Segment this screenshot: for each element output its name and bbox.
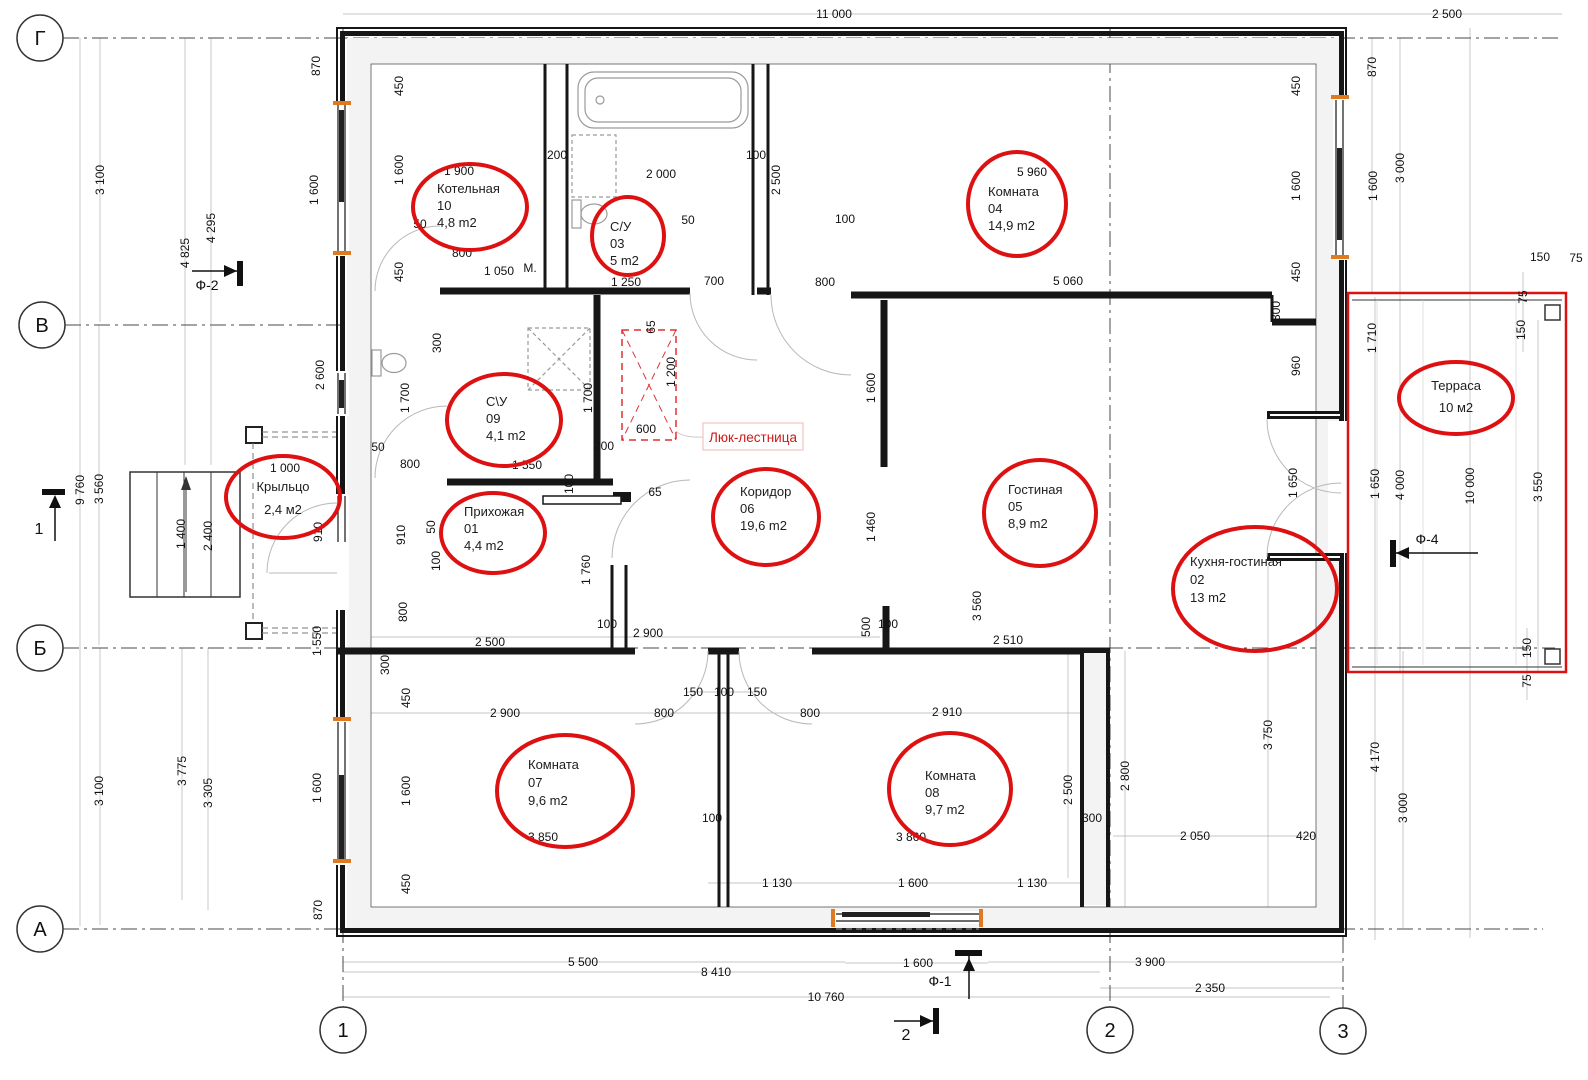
room-circle-annotation [889,733,1011,845]
room-label-group: Коридор0619,6 m2 [713,469,819,565]
marker-f2: Ф-2 [192,261,243,293]
dimension-label: 75 [1516,290,1530,304]
dimension-label: 2 800 [1118,761,1132,791]
dimension-label: 3 560 [92,474,106,504]
dimension-label: 100 [562,474,576,494]
dimension-label: 150 [1530,250,1550,264]
room-label-group: Прихожая014,4 m2 [441,493,545,573]
dimension-label: 75 [1569,251,1583,265]
dimension-label: 2 900 [633,626,663,640]
dimension-label: 100 [702,811,722,825]
dimension-label: 4 295 [204,213,218,243]
dimension-label: 800 [654,706,674,720]
fixtures [372,72,748,390]
dimension-label: 1 760 [579,555,593,585]
dimension-label: 2 500 [1061,775,1075,805]
dimension-label: 1 600 [392,155,406,185]
dimension-label: 2 400 [201,521,215,551]
dimension-label: 100 [714,685,734,699]
floor-plan-canvas: Люк-лестница Ф-2 1 Ф-1 2 [0,0,1588,1080]
dimension-label: 600 [636,422,656,436]
terrace-post [1545,649,1560,664]
marker-f1: Ф-1 [928,950,982,999]
dimension-label: 960 [1289,356,1303,376]
axis-markers-layer: ГВБА123 [17,15,1366,1054]
dimension-label: 3 550 [1531,472,1545,502]
room-label: Гостиная058,9 m2 [1008,482,1063,531]
dimension-label: 300 [430,333,444,353]
dimension-label: 100 [597,617,617,631]
dimension-label: 50 [681,213,695,227]
room-label: Котельная104,8 m2 [437,181,500,230]
room-label: С/У035 m2 [610,219,639,268]
dimension-label: 1 250 [611,275,641,289]
dimension-label: 50 [371,440,385,454]
dimension-label: 11 000 [816,7,852,21]
axis-label: 2 [1104,1020,1115,1042]
dimension-label: 100 [878,617,898,631]
axis-label: 3 [1337,1021,1348,1043]
room-label: Терраса10 м2 [1431,378,1482,415]
dimension-label: 100 [429,551,443,571]
dimension-label: 3 775 [175,756,189,786]
dimension-label: 1 600 [864,373,878,403]
dimension-label: 800 [815,275,835,289]
dimension-label: 150 [683,685,703,699]
room-label-group: С\У094,1 m2 [447,374,561,466]
dimension-label: 2 500 [769,165,783,195]
room-label-group: С/У035 m2 [592,197,664,275]
dimension-label: 3 560 [970,591,984,621]
dimension-label: 2 600 [313,360,327,390]
dimension-label: 1 200 [664,357,678,387]
dimension-label: 420 [1296,829,1316,843]
dimension-label: 1 600 [898,876,928,890]
dimension-label: 1 600 [307,175,321,205]
dimension-label: 8 410 [701,965,731,979]
dimension-label: 800 [396,602,410,622]
dimension-label: 100 [835,212,855,226]
marker-section-2: 2 [894,1008,939,1044]
dimension-label: 2 000 [646,167,676,181]
dimension-label: 2 500 [475,635,505,649]
toilet-bowl [382,354,406,373]
dimension-label: 2 510 [993,633,1023,647]
dimension-label: 100 [746,148,766,162]
room-label-group: Комната079,6 m2 [497,735,633,847]
dimension-label: 870 [1365,57,1379,77]
axis-label: Б [33,638,46,660]
dimension-label: 65 [648,485,662,499]
room-circle-annotation [447,374,561,466]
dimension-label: 910 [394,525,408,545]
dimension-label: 2 500 [1432,7,1462,21]
room-label: Прихожая014,4 m2 [464,504,524,553]
dimension-label: 700 [704,274,724,288]
dimension-label: 200 [594,439,614,453]
room-label-group: Терраса10 м2 [1399,362,1513,434]
dimension-label: 10 760 [808,990,845,1004]
room-label: Комната0414,9 m2 [988,184,1040,233]
porch-post [246,427,262,443]
dimension-label: 4 170 [1368,742,1382,772]
dimension-label: 1 050 [484,264,514,278]
dimension-label: 1 600 [903,956,933,970]
dimension-label: 500 [859,617,873,637]
dimension-label: 800 [400,457,420,471]
svg-text:Ф-2: Ф-2 [195,277,218,293]
toilet-tank [572,200,581,228]
svg-text:2: 2 [902,1027,911,1044]
axis-marker: В [19,302,65,348]
dimension-label: 5 060 [1053,274,1083,288]
dimension-label: 1 550 [310,626,324,656]
dimension-label: 4 000 [1393,470,1407,500]
dimension-label: 1 600 [310,773,324,803]
porch-post [246,623,262,639]
axis-label: В [35,315,48,337]
dimension-label: 150 [1520,638,1534,658]
dimension-label: 870 [311,900,325,920]
hatch-ladder-label: Люк-лестница [709,430,797,445]
axis-marker: 3 [1320,1008,1366,1054]
dimension-label: 3 750 [1261,720,1275,750]
axis-marker: Г [17,15,63,61]
dimension-label: 2 350 [1195,981,1225,995]
dimension-label: 2 050 [1180,829,1210,843]
dimension-label: 450 [392,76,406,96]
dimension-label: 1 650 [1286,468,1300,498]
dimension-label: 1 460 [864,512,878,542]
room-label: Крыльцо2,4 м2 [256,479,309,517]
svg-text:Ф-4: Ф-4 [1415,531,1438,547]
dimension-label: 65 [644,320,658,334]
dimension-label: 1 710 [1365,323,1379,353]
room-circle-annotation [984,460,1096,566]
dimension-label: 1 000 [270,461,300,475]
dimension-label: 450 [1289,76,1303,96]
svg-text:Ф-1: Ф-1 [928,973,951,989]
dimension-label: 1 700 [581,383,595,413]
dimension-label: 5 960 [1017,165,1047,179]
room-label: Коридор0619,6 m2 [740,484,791,533]
room-circle-annotation [497,735,633,847]
dimension-label: 450 [399,688,413,708]
dimension-label: 1 600 [399,776,413,806]
dimension-label: 1 400 [174,519,188,549]
toilet-tank [372,350,381,376]
dimension-label: 450 [392,262,406,282]
dimension-label: 450 [1289,262,1303,282]
terrace-door-opening [1267,411,1348,561]
dimension-label: 200 [547,148,567,162]
svg-text:1: 1 [35,521,44,538]
dimension-label: 3 000 [1396,793,1410,823]
dimension-label: 300 [1269,301,1283,321]
marker-f4: Ф-4 [1390,531,1478,567]
room-label-group: Кухня-гостиная0213 m2 [1173,527,1337,651]
room-label: Комната089,7 m2 [925,768,977,817]
dimension-label: 1 700 [398,383,412,413]
room-label-group: Гостиная058,9 m2 [984,460,1096,566]
axis-marker: Б [17,625,63,671]
dimension-label: 300 [378,655,392,675]
dimension-label: 300 [1082,811,1102,825]
dimension-label: 50 [424,520,438,534]
dimension-label: 1 130 [1017,876,1047,890]
axis-marker: 1 [320,1007,366,1053]
dimension-label: 1 130 [762,876,792,890]
dimension-label: 3 305 [201,778,215,808]
dimension-label: 1 650 [1368,469,1382,499]
terrace-post [1545,305,1560,320]
axis-label: Г [35,28,46,50]
dimension-label: 150 [747,685,767,699]
dimension-label: 9 760 [73,475,87,505]
room-label-group: Комната089,7 m2 [889,733,1011,845]
axis-marker: 2 [1087,1007,1133,1053]
room-label: Комната079,6 m2 [528,757,580,808]
washing-machine [572,135,616,197]
dimension-label: 3 000 [1393,153,1407,183]
dimension-label: 3 100 [92,776,106,806]
stairs-direction-arrow [181,476,191,490]
dimension-label: 5 500 [568,955,598,969]
axis-label: 1 [337,1020,348,1042]
marker-section-1: 1 [35,489,65,541]
dimension-label: 1 600 [1289,171,1303,201]
dimension-label: 2 910 [932,705,962,719]
floor-plan-page: Люк-лестница Ф-2 1 Ф-1 2 [0,0,1588,1080]
dimension-label: 800 [800,706,820,720]
dimension-label: 870 [309,56,323,76]
dimension-label: 3 900 [1135,955,1165,969]
dimension-label: 4 825 [178,238,192,268]
dimension-label: 2 900 [490,706,520,720]
dimension-label: 75 [1520,674,1534,688]
room-label: С\У094,1 m2 [486,394,526,443]
axis-label: А [33,919,47,941]
dimension-label: 450 [399,874,413,894]
dimension-label: 10 000 [1463,467,1477,504]
dimension-label: 1 600 [1366,171,1380,201]
dimension-label: 3 100 [93,165,107,195]
room-circle-annotation [1173,527,1337,651]
dimension-label: 150 [1514,320,1528,340]
axis-marker: А [17,906,63,952]
dimension-label: М. [523,261,536,275]
room-circle-annotation [1399,362,1513,434]
